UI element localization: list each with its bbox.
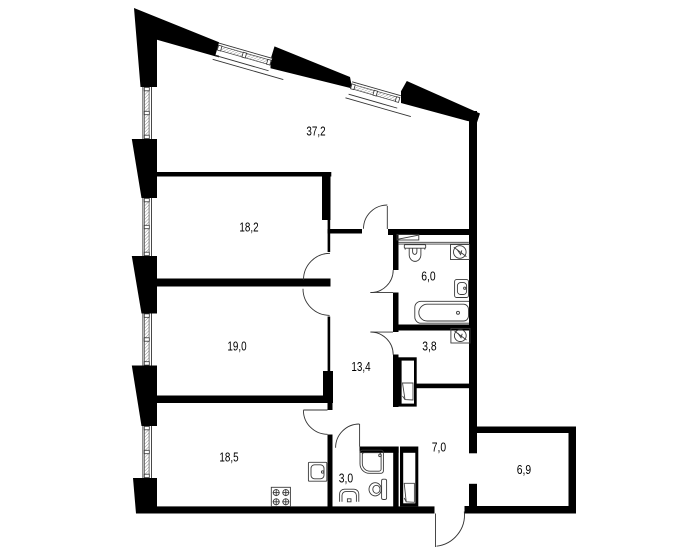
- svg-text:6,9: 6,9: [517, 462, 531, 477]
- svg-text:6,0: 6,0: [421, 269, 435, 284]
- svg-text:37,2: 37,2: [306, 124, 325, 139]
- svg-text:3,0: 3,0: [339, 471, 353, 486]
- svg-text:18,2: 18,2: [239, 220, 258, 235]
- svg-text:19,0: 19,0: [227, 339, 246, 354]
- svg-text:13,4: 13,4: [351, 359, 370, 374]
- svg-text:3,8: 3,8: [422, 339, 436, 354]
- svg-text:18,5: 18,5: [219, 450, 238, 465]
- svg-text:7,0: 7,0: [432, 440, 446, 455]
